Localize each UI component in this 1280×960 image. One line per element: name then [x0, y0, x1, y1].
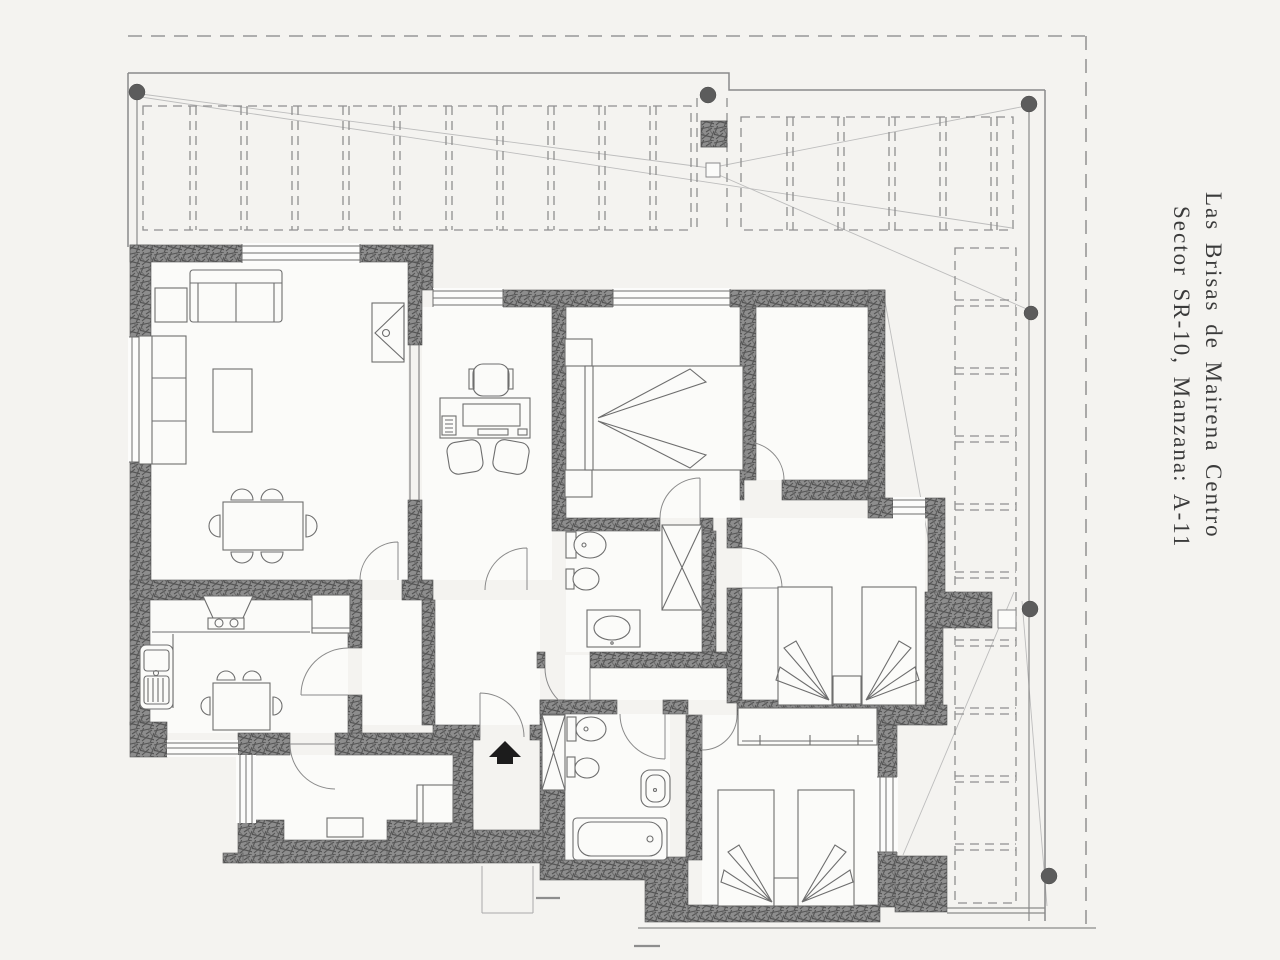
corner-tv-unit	[372, 303, 404, 362]
window-master-top	[613, 288, 730, 308]
closet	[738, 708, 877, 745]
guest-chair-1	[446, 439, 485, 476]
side-table	[155, 288, 187, 322]
plan-title-line1: Las Brisas de Mairena Centro	[1201, 192, 1226, 539]
nightstand-4	[774, 878, 798, 906]
wardrobe-x	[662, 525, 702, 610]
window-study-top	[433, 288, 503, 308]
guest-chair-2	[491, 438, 530, 475]
cooktop	[208, 618, 244, 629]
window-utility-left	[236, 755, 256, 823]
nightstand-3	[833, 676, 861, 704]
appliance	[417, 785, 453, 823]
nightstand-1	[565, 339, 592, 366]
toilet-2	[567, 717, 606, 741]
scanned-floor-plan-page: Las Brisas de Mairena Centro Sector SR-1…	[0, 0, 1280, 960]
twin-bed-1	[778, 587, 832, 705]
linen-cabinet-x	[542, 715, 565, 790]
column-base-marker	[706, 163, 720, 177]
fridge	[312, 595, 350, 633]
twin-bed-3	[718, 790, 774, 906]
office-chair	[473, 364, 509, 396]
window-bedroom4-right	[876, 777, 898, 852]
chimney-block	[701, 121, 727, 147]
bidet-2	[567, 757, 599, 778]
kitchen-sink	[140, 645, 173, 709]
sofa-left	[139, 336, 186, 464]
bathtub	[573, 818, 667, 860]
washbasin-1	[587, 610, 640, 647]
twin-bed-4	[798, 790, 854, 906]
washbasin-2	[641, 770, 670, 807]
bedroom4-furniture	[718, 708, 877, 906]
window-living-top	[242, 243, 360, 264]
bidet-1	[566, 568, 599, 590]
window-jog	[893, 497, 925, 519]
coffee-table	[213, 369, 252, 432]
column-base-marker-2	[998, 610, 1016, 628]
toilet-1	[566, 532, 606, 558]
window-kitchen-bottom	[167, 740, 238, 757]
low-cabinet	[327, 818, 363, 837]
floor-plan-drawing: Las Brisas de Mairena Centro Sector SR-1…	[0, 0, 1280, 960]
nightstand-2	[565, 470, 592, 497]
plan-title-line2: Sector SR-10, Manzana: A-11	[1169, 206, 1194, 548]
